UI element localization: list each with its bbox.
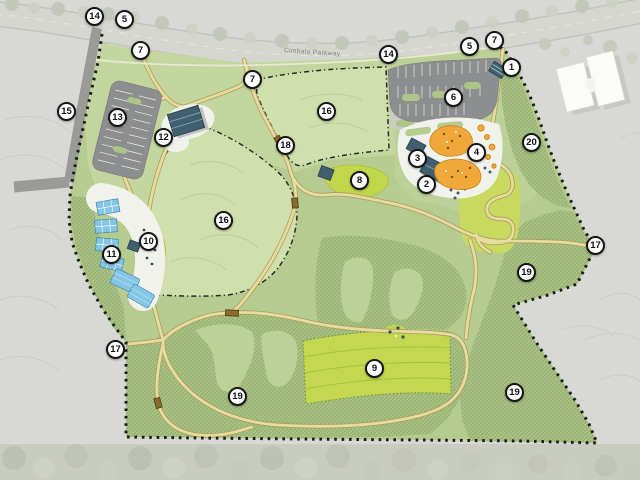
tree-band-bottom bbox=[0, 444, 640, 480]
site-plan-map bbox=[0, 0, 640, 480]
park-master-plan: 1457714571616203428181513121610111719919… bbox=[0, 0, 640, 480]
